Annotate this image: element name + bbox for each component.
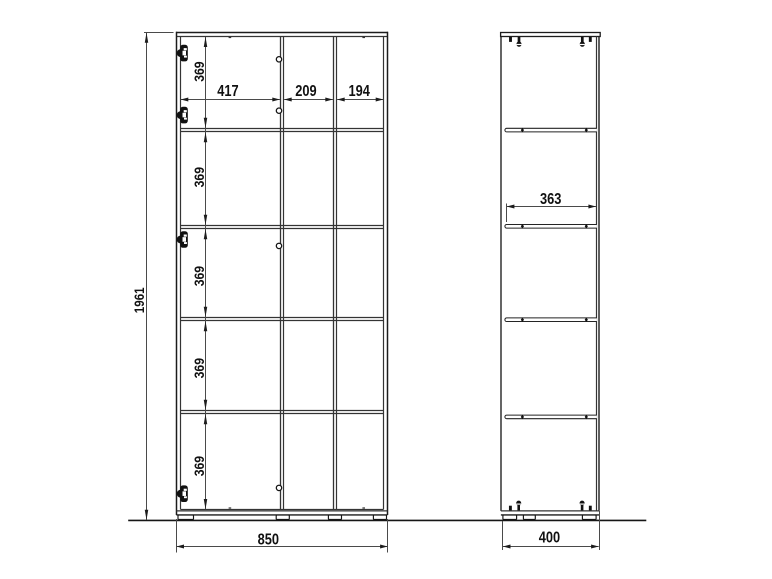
svg-text:850: 850 xyxy=(258,532,279,549)
svg-text:209: 209 xyxy=(295,83,317,100)
svg-text:1961: 1961 xyxy=(132,287,147,313)
svg-text:369: 369 xyxy=(192,61,207,82)
svg-text:194: 194 xyxy=(349,83,371,100)
svg-text:400: 400 xyxy=(539,530,560,547)
svg-text:369: 369 xyxy=(192,167,207,188)
svg-text:369: 369 xyxy=(192,358,207,379)
svg-text:363: 363 xyxy=(540,191,562,208)
svg-text:369: 369 xyxy=(192,266,207,287)
svg-text:369: 369 xyxy=(192,456,207,477)
svg-text:417: 417 xyxy=(217,83,238,100)
